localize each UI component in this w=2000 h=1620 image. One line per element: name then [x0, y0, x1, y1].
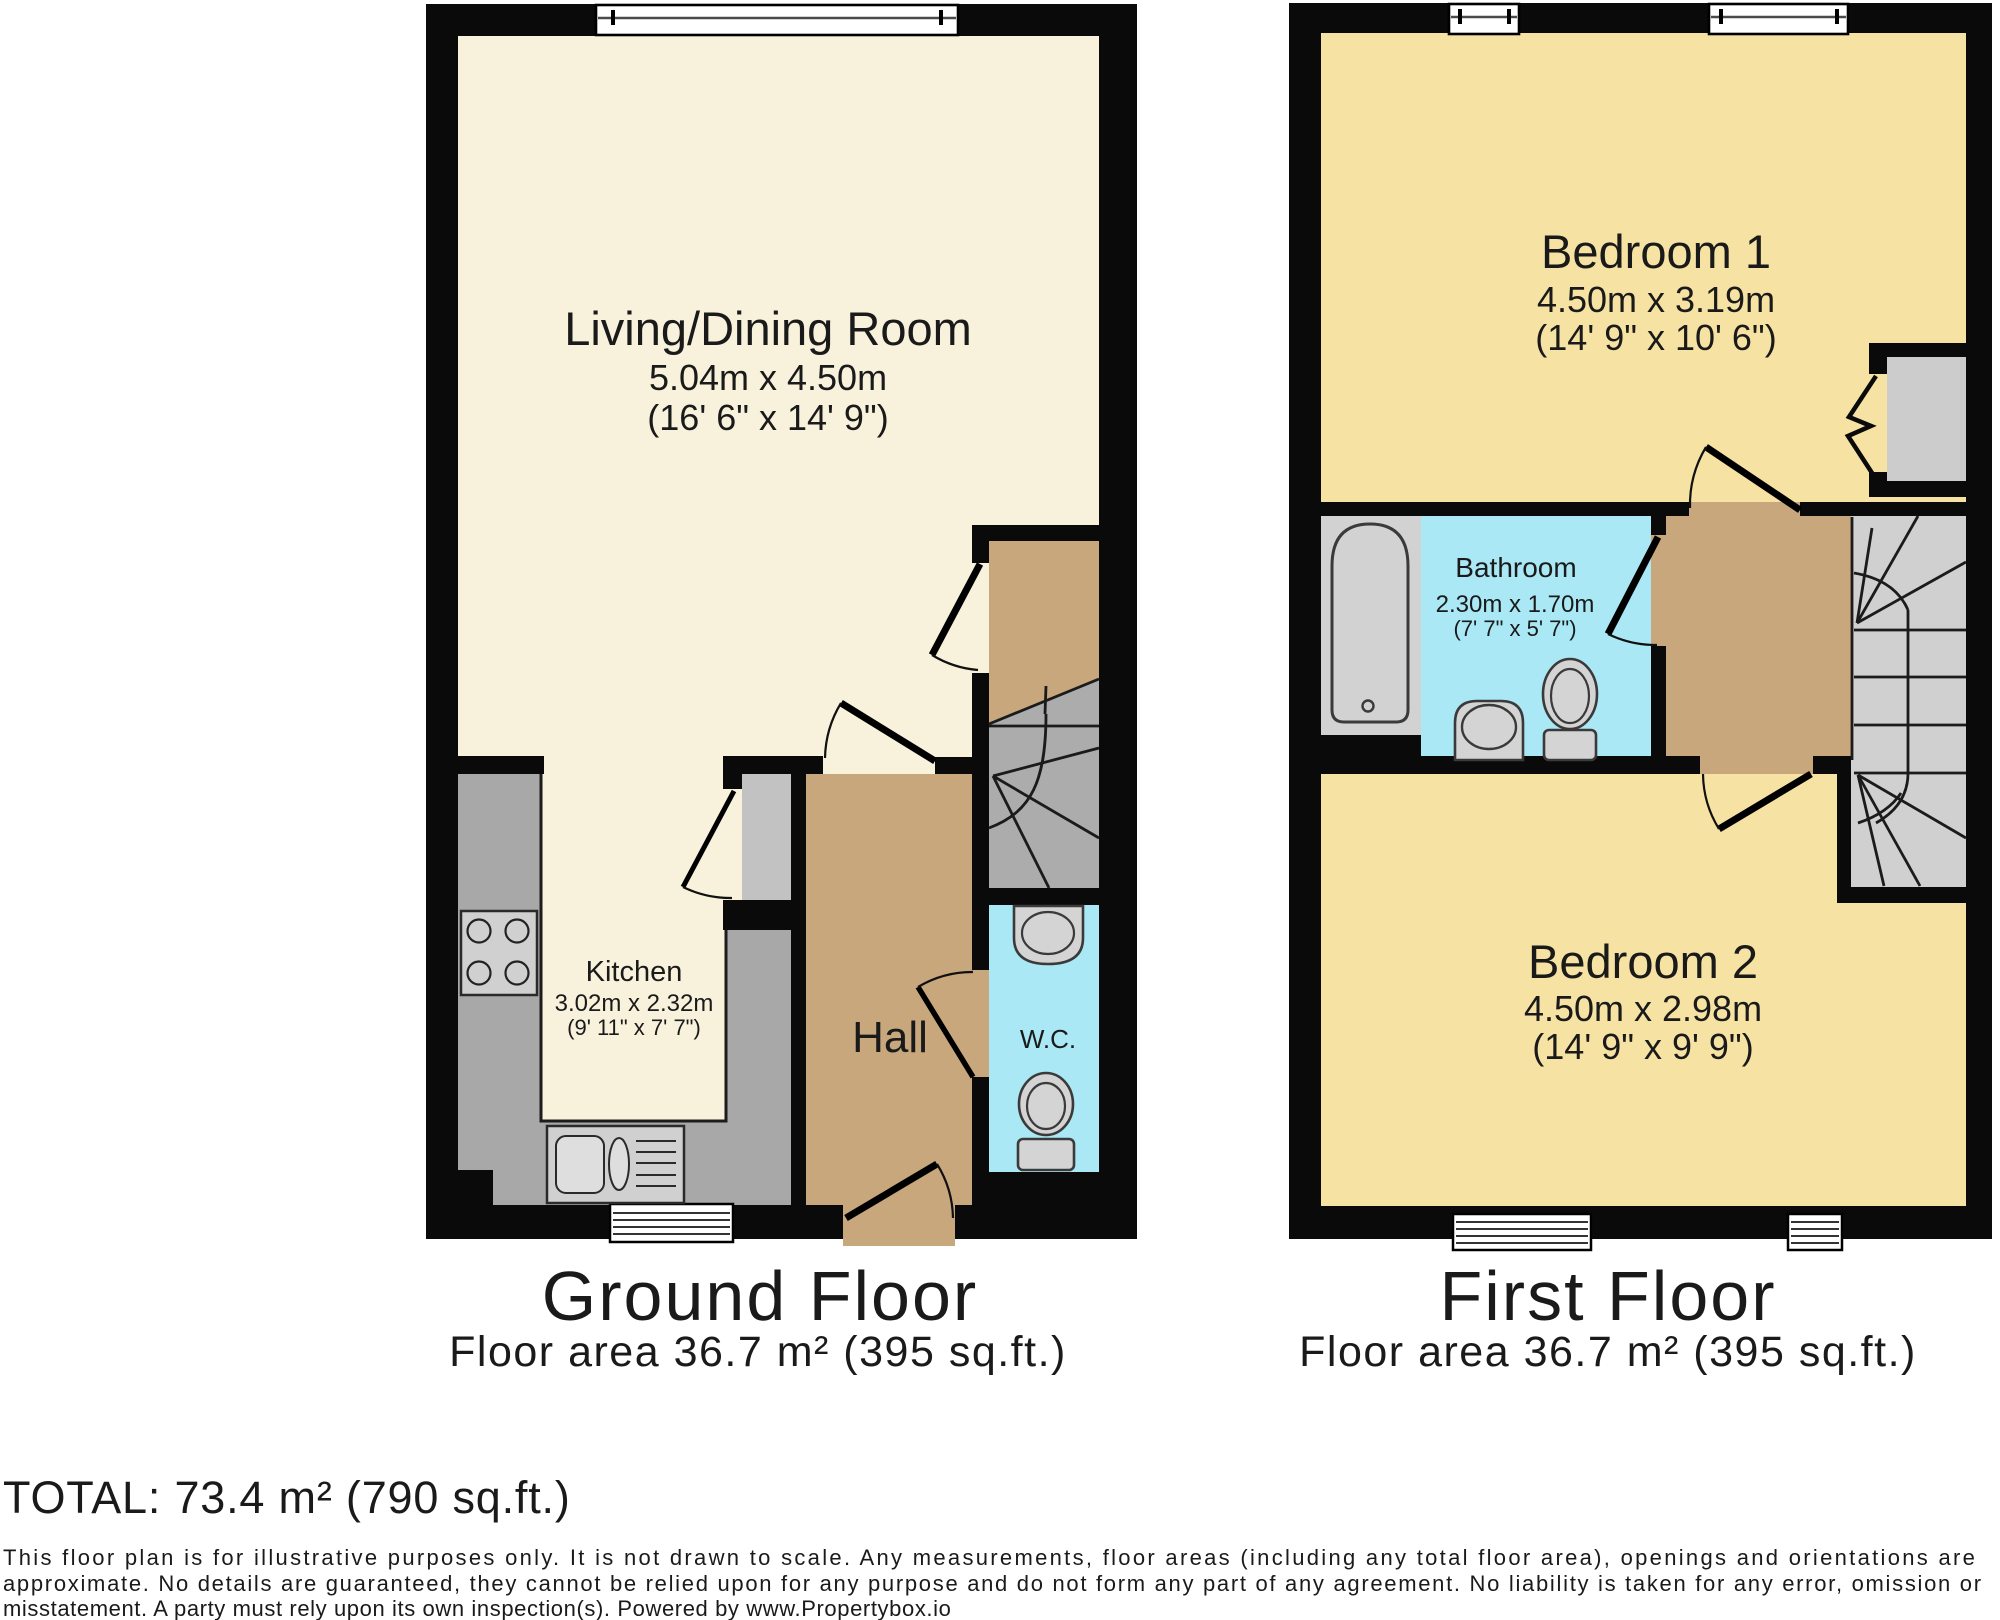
svg-text:(9' 11" x 7' 7"): (9' 11" x 7' 7")	[567, 1015, 701, 1040]
svg-text:This floor plan is for illustr: This floor plan is for illustrative purp…	[3, 1545, 1977, 1570]
svg-text:Bedroom 2: Bedroom 2	[1528, 935, 1758, 988]
svg-text:W.C.: W.C.	[1020, 1024, 1076, 1054]
svg-text:Kitchen: Kitchen	[586, 956, 683, 988]
svg-text:(16' 6" x 14' 9"): (16' 6" x 14' 9")	[647, 397, 888, 438]
svg-text:(14' 9" x 9' 9"): (14' 9" x 9' 9")	[1532, 1026, 1753, 1067]
svg-text:First Floor: First Floor	[1440, 1257, 1777, 1335]
svg-text:TOTAL: 73.4 m² (790 sq.ft.): TOTAL: 73.4 m² (790 sq.ft.)	[3, 1472, 571, 1523]
svg-text:5.04m x 4.50m: 5.04m x 4.50m	[649, 357, 887, 398]
svg-text:Bedroom 1: Bedroom 1	[1541, 225, 1771, 278]
svg-text:4.50m x 3.19m: 4.50m x 3.19m	[1537, 279, 1775, 320]
svg-text:4.50m x 2.98m: 4.50m x 2.98m	[1524, 988, 1762, 1029]
svg-text:(14' 9" x 10' 6"): (14' 9" x 10' 6")	[1535, 317, 1776, 358]
svg-text:Floor area 36.7 m² (395 sq.ft.: Floor area 36.7 m² (395 sq.ft.)	[449, 1328, 1067, 1376]
svg-text:misstatement. A party must rel: misstatement. A party must rely upon its…	[3, 1596, 951, 1620]
svg-text:(7' 7" x 5' 7"): (7' 7" x 5' 7")	[1453, 616, 1576, 641]
svg-text:3.02m x 2.32m: 3.02m x 2.32m	[555, 990, 714, 1017]
svg-text:Living/Dining Room: Living/Dining Room	[564, 302, 972, 355]
svg-text:Floor area 36.7 m² (395 sq.ft.: Floor area 36.7 m² (395 sq.ft.)	[1299, 1328, 1917, 1376]
svg-text:2.30m x 1.70m: 2.30m x 1.70m	[1436, 591, 1595, 618]
svg-text:Bathroom: Bathroom	[1455, 552, 1576, 583]
svg-text:Hall: Hall	[852, 1013, 928, 1062]
svg-text:Ground Floor: Ground Floor	[542, 1257, 978, 1335]
svg-text:approximate. No details are gu: approximate. No details are guaranteed, …	[3, 1571, 1983, 1596]
